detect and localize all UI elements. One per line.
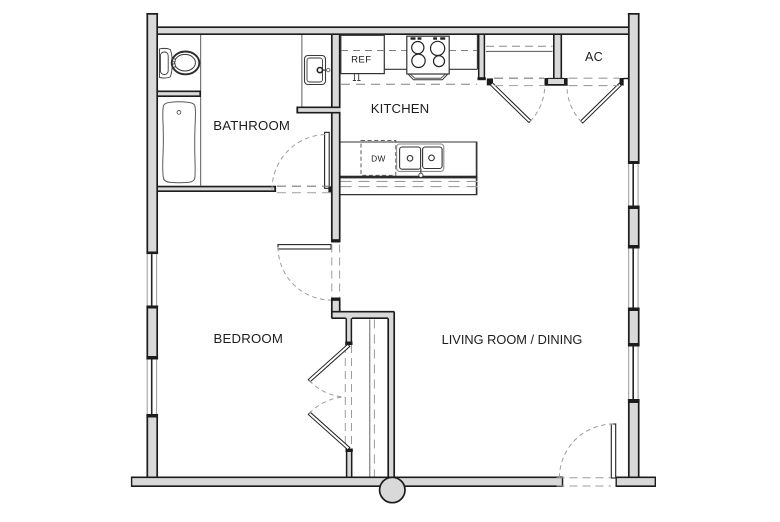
- svg-text:BEDROOM: BEDROOM: [214, 331, 284, 346]
- svg-text:AC: AC: [585, 50, 603, 64]
- svg-text:DW: DW: [371, 154, 386, 164]
- svg-text:BATHROOM: BATHROOM: [213, 118, 290, 133]
- svg-text:LIVING ROOM / DINING: LIVING ROOM / DINING: [442, 332, 583, 347]
- svg-text:KITCHEN: KITCHEN: [371, 101, 430, 116]
- svg-text:REF: REF: [351, 54, 371, 65]
